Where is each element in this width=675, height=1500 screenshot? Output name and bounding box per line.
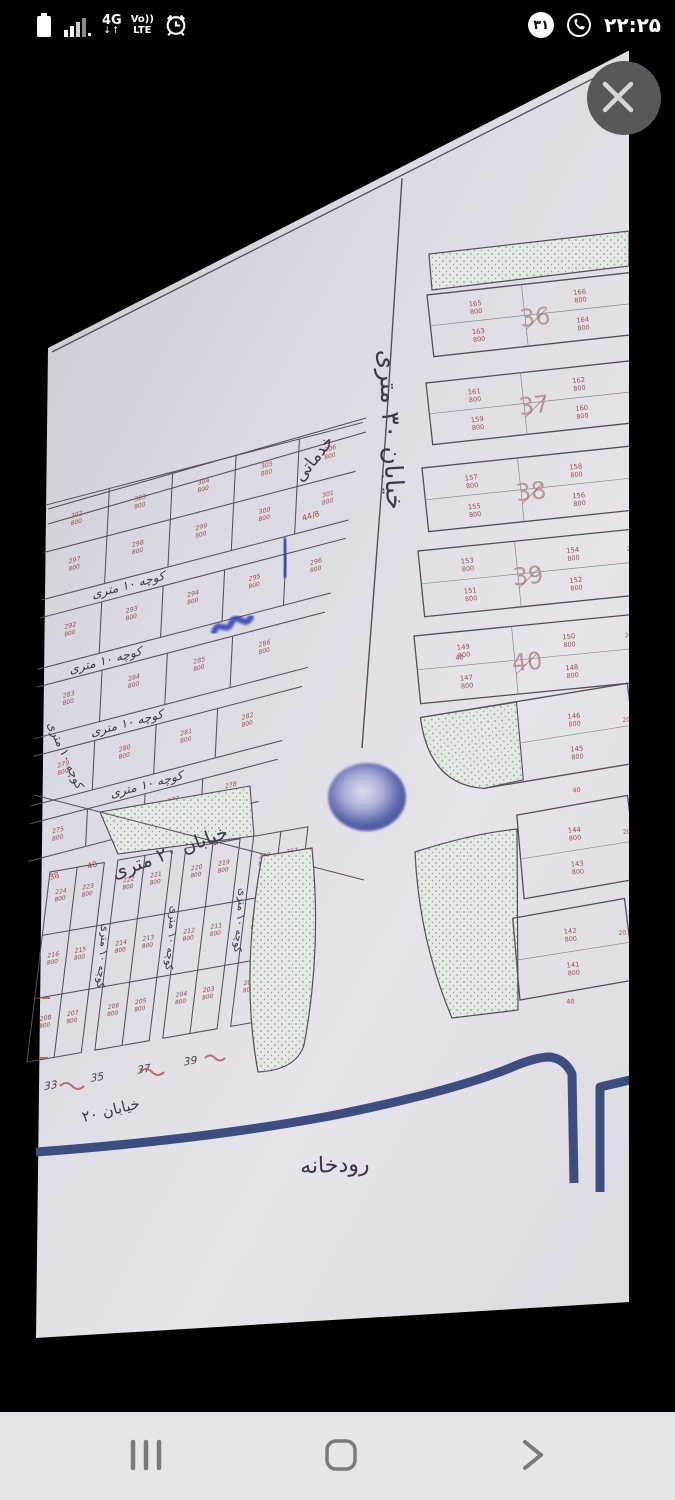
plot-number-denominator: 800 bbox=[473, 335, 486, 344]
red-forty-mark: 40 bbox=[455, 653, 464, 662]
plot-number-denominator: 800 bbox=[573, 499, 586, 508]
status-bar: 4G ↓↑ Vo)) LTE ۳۱ ۲۲:۲۵ bbox=[0, 0, 675, 50]
notification-count-badge: ۳۱ bbox=[528, 12, 554, 38]
plot-number-denominator: 800 bbox=[469, 395, 482, 404]
alarm-clock-icon bbox=[163, 12, 189, 39]
plot-number-denominator: 800 bbox=[574, 295, 587, 304]
recents-icon bbox=[128, 1438, 164, 1472]
plot-number-denominator: 800 bbox=[462, 564, 475, 573]
volte-label: Vo)) bbox=[131, 14, 154, 25]
blue-pen-mark-1 bbox=[284, 540, 286, 575]
block-36-number: 36 bbox=[518, 302, 551, 333]
plot-number-denominator: 800 bbox=[573, 384, 586, 393]
plot-number-denominator: 800 bbox=[569, 833, 582, 842]
plot-number-denominator: 800 bbox=[470, 307, 483, 316]
plot-number-denominator: 800 bbox=[577, 323, 590, 332]
phone-screen: 4G ↓↑ Vo)) LTE ۳۱ ۲۲:۲۵ bbox=[0, 0, 675, 1500]
block-37-number: 37 bbox=[517, 390, 550, 421]
plot-number-denominator: 800 bbox=[567, 554, 580, 563]
plot-number: 33 bbox=[43, 1078, 58, 1093]
plot-number-denominator: 800 bbox=[563, 640, 576, 649]
plot-number-denominator: 800 bbox=[564, 935, 577, 944]
back-button[interactable] bbox=[509, 1429, 555, 1484]
status-right-cluster: ۳۱ ۲۲:۲۵ bbox=[528, 11, 675, 39]
plot-number-denominator: 800 bbox=[570, 470, 583, 479]
cut-plot-number: 20 bbox=[618, 929, 626, 937]
home-icon bbox=[323, 1437, 359, 1473]
plot-number: 39 bbox=[183, 1053, 198, 1068]
plot-number: 35 bbox=[90, 1070, 105, 1085]
roundabout-pond bbox=[328, 763, 406, 831]
plot-number-denominator: 800 bbox=[568, 719, 581, 728]
red-forty-mark: 40 bbox=[566, 997, 575, 1006]
recents-button[interactable] bbox=[120, 1430, 172, 1483]
block-39-number: 39 bbox=[511, 561, 544, 592]
plot-number-denominator: 800 bbox=[461, 681, 474, 690]
data-arrows-label: ↓↑ bbox=[103, 27, 120, 36]
plot-number-denominator: 800 bbox=[570, 583, 583, 592]
block-40-number: 40 bbox=[511, 647, 544, 678]
plot-number-denominator: 800 bbox=[472, 423, 485, 432]
plot-number-denominator: 800 bbox=[571, 867, 584, 876]
red-forty-mark: 40 bbox=[572, 786, 581, 795]
navigation-bar bbox=[0, 1412, 675, 1500]
plot-number-denominator: 800 bbox=[571, 752, 584, 761]
photo-viewer: خدماتی خیابان ۳۰ متری 36 165800166800163… bbox=[0, 0, 675, 1500]
plot-number-denominator: 800 bbox=[566, 671, 579, 680]
status-left-cluster: 4G ↓↑ Vo)) LTE bbox=[0, 12, 189, 39]
plot-number-denominator: 800 bbox=[469, 510, 482, 519]
lte-label: LTE bbox=[133, 25, 151, 36]
dotted-green-band-center bbox=[250, 848, 316, 1072]
home-button[interactable] bbox=[315, 1429, 367, 1484]
plot-number-denominator: 800 bbox=[576, 411, 589, 420]
plot-number-denominator: 800 bbox=[466, 481, 479, 490]
back-chevron-icon bbox=[517, 1437, 547, 1473]
plot-number-denominator: 800 bbox=[567, 968, 580, 977]
river-label: رودخانه bbox=[300, 1152, 370, 1179]
plot-number-denominator: 800 bbox=[465, 594, 478, 603]
clock-time: ۲۲:۲۵ bbox=[604, 13, 661, 37]
letterbox-band bbox=[629, 0, 675, 1500]
block-38-number: 38 bbox=[514, 476, 547, 507]
whatsapp-icon bbox=[565, 11, 593, 39]
signal-strength-icon bbox=[63, 12, 93, 39]
volte-indicator: Vo)) LTE bbox=[131, 14, 154, 36]
close-button[interactable] bbox=[587, 61, 661, 135]
battery-icon bbox=[34, 12, 54, 39]
network-4g-indicator: 4G ↓↑ bbox=[102, 14, 122, 36]
